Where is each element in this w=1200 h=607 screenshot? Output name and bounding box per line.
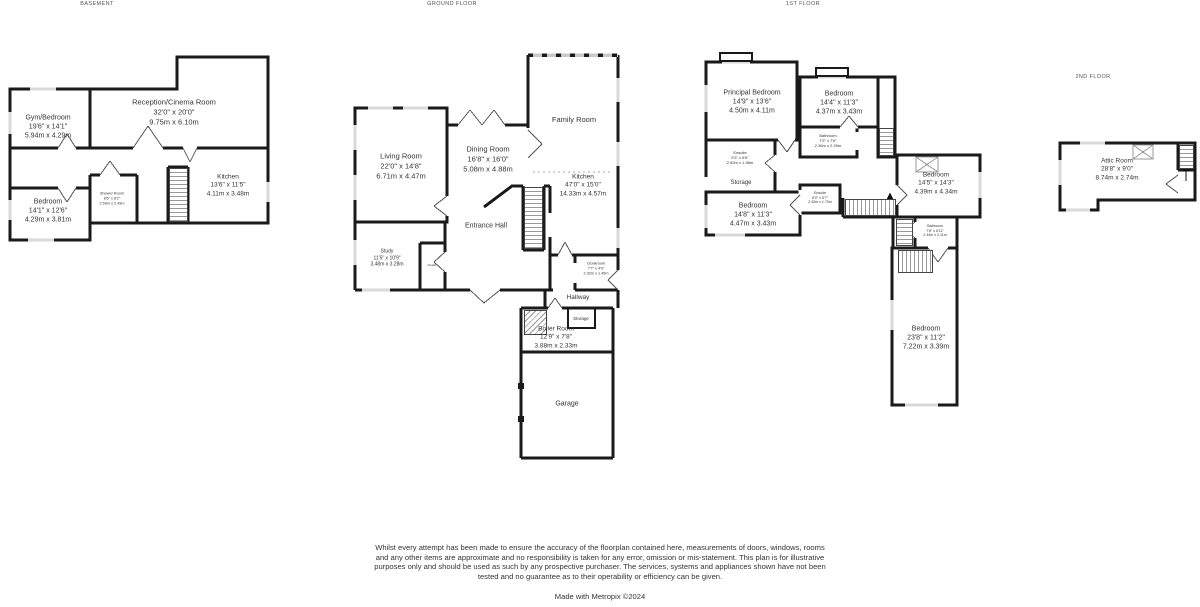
room-label-principal-bedroom: Principal Bedroom 14'9" x 13'6" 4.50m x … <box>723 88 780 115</box>
room-label-ensuite-2: Ensuite 8'0" x 5'7" 2.43m x 1.70m <box>808 191 832 205</box>
room-label-attic-room: Attic Room 28'8" x 9'0" 8.74m x 2.74m <box>1096 157 1139 182</box>
room-label-entrance-hall: Entrance Hall <box>465 221 507 230</box>
room-size-imperial: 28'8" x 9'0" <box>1096 166 1139 174</box>
room-size-metric: 4.11m x 3.48m <box>207 190 250 198</box>
room-name: Kitchen <box>560 173 607 181</box>
room-name: Bedroom <box>816 89 862 98</box>
room-size-metric: 4.39m x 4.34m <box>915 188 958 196</box>
room-name: Dining Room <box>463 144 513 154</box>
room-name: Bedroom <box>25 197 71 206</box>
room-name: Cloaks <box>427 264 436 268</box>
floorplan-canvas: BASEMENT GROUND FLOOR 1ST FLOOR 2ND FLOO… <box>0 0 1200 607</box>
room-label-reception-cinema: Reception/Cinema Room 32'0" x 20'0" 9.75… <box>132 97 216 126</box>
room-label-study: Study 11'5" x 10'9" 3.48m x 3.28m <box>370 248 403 268</box>
room-name: Reception/Cinema Room <box>132 97 216 107</box>
room-size-imperial: 14'4" x 11'3" <box>816 98 862 107</box>
room-name: Principal Bedroom <box>723 88 780 97</box>
room-name: Hallway <box>567 294 590 302</box>
room-size-imperial: 19'6" x 14'1" <box>25 122 71 131</box>
room-label-cloakroom: Cloakroom 7'7" x 4'9" 2.32m x 1.45m <box>583 262 608 277</box>
room-name: Garage <box>555 399 578 408</box>
room-size-metric: 5.08m x 4.88m <box>463 164 513 174</box>
floorplan-walls <box>0 0 1200 607</box>
room-name: Bedroom <box>903 324 949 333</box>
room-label-cloaks: Cloaks <box>427 264 436 268</box>
room-size-metric: 2.36m x 2.29m <box>815 144 841 149</box>
room-label-ground-kitchen: Kitchen 47'0" x 15'0" 14.33m x 4.57m <box>560 173 607 198</box>
room-name: Attic Room <box>1096 157 1139 165</box>
room-label-boiler-room: Boiler Room 12'9" x 7'8" 3.88m x 2.33m <box>535 325 578 350</box>
room-size-imperial: 14'1" x 12'6" <box>25 206 71 215</box>
floor-title-basement: BASEMENT <box>80 1 113 7</box>
room-name: Gym/Bedroom <box>25 113 71 122</box>
room-size-imperial: 22'0" x 14'8" <box>376 161 426 171</box>
room-label-bathroom-1: Bathroom 7'9" x 7'6" 2.36m x 2.29m <box>815 133 841 149</box>
room-label-ground-storage: Storage <box>573 316 589 322</box>
room-label-first-storage: Storage <box>730 180 751 188</box>
room-name: Living Room <box>376 151 426 161</box>
room-size-imperial: 32'0" x 20'0" <box>132 107 216 117</box>
room-label-shower-room: Shower Room 8'6" x 8'2" 2.59m x 2.49m <box>99 192 124 207</box>
floor-title-ground: GROUND FLOOR <box>427 1 477 7</box>
room-size-metric: 8.74m x 2.74m <box>1096 174 1139 182</box>
room-name: Storage <box>730 180 751 188</box>
second-stairs <box>1179 145 1194 169</box>
room-name: Bedroom <box>915 171 958 179</box>
first-roof-window <box>916 157 938 172</box>
first-winder-stairs-upper <box>896 219 913 246</box>
room-label-family-room: Family Room <box>552 115 596 125</box>
first-main-stairs <box>845 199 896 216</box>
room-label-hallway: Hallway <box>567 294 590 302</box>
room-label-bedroom-2: Bedroom 14'4" x 11'3" 4.37m x 3.43m <box>816 89 862 116</box>
room-label-ensuite-1: Ensuite 9'3" x 6'6" 2.82m x 1.98m <box>727 150 753 166</box>
room-size-metric: 5.94m x 4.29m <box>25 132 71 141</box>
room-size-imperial: 13'6" x 11'5" <box>207 182 250 190</box>
room-size-metric: 6.71m x 4.47m <box>376 171 426 181</box>
room-name: Kitchen <box>207 173 250 181</box>
room-name: Storage <box>573 316 589 322</box>
room-name: Entrance Hall <box>465 221 507 230</box>
room-size-metric: 2.32m x 1.45m <box>583 271 608 276</box>
first-window-boxes <box>720 53 848 76</box>
room-size-metric: 7.22m x 3.39m <box>903 343 949 352</box>
room-label-living-room: Living Room 22'0" x 14'8" 6.71m x 4.47m <box>376 151 426 180</box>
room-size-metric: 2.34m x 2.11m <box>923 233 947 238</box>
room-name: Bedroom <box>730 201 776 210</box>
first-winder-stairs-lower <box>898 250 933 273</box>
room-size-metric: 3.48m x 3.28m <box>370 261 403 268</box>
room-label-bedroom-3: Bedroom 14'8" x 11'3" 4.47m x 3.43m <box>730 201 776 228</box>
room-name: Boiler Room <box>535 325 578 333</box>
second-door-marks <box>1166 175 1178 193</box>
credit-text: Made with Metropix ©2024 <box>555 592 645 601</box>
room-size-metric: 2.82m x 1.98m <box>727 161 753 166</box>
room-size-metric: 4.47m x 3.43m <box>730 220 776 229</box>
room-label-bedroom-5: Bedroom 23'8" x 11'2" 7.22m x 3.39m <box>903 324 949 351</box>
floor-title-first: 1ST FLOOR <box>786 1 820 7</box>
room-label-gym-bedroom: Gym/Bedroom 19'6" x 14'1" 5.94m x 4.29m <box>25 113 71 140</box>
disclaimer-text: Whilst every attempt has been made to en… <box>369 543 831 582</box>
room-size-metric: 3.88m x 2.33m <box>535 342 578 350</box>
room-size-metric: 4.37m x 3.43m <box>816 108 862 117</box>
basement-stairs <box>169 168 188 222</box>
room-size-metric: 14.33m x 4.57m <box>560 190 607 198</box>
room-size-metric: 4.50m x 4.11m <box>723 107 780 116</box>
room-label-bedroom-4: Bedroom 14'5" x 14'3" 4.39m x 4.34m <box>915 171 958 196</box>
floor-title-second: 2ND FLOOR <box>1075 74 1110 80</box>
room-size-imperial: 14'5" x 14'3" <box>915 180 958 188</box>
room-size-imperial: 16'8" x 16'0" <box>463 154 513 164</box>
room-label-bathroom-2: Bathroom 7'8" x 6'11" 2.34m x 2.11m <box>923 224 947 238</box>
room-size-imperial: 23'8" x 11'2" <box>903 333 949 342</box>
room-size-imperial: 14'8" x 11'3" <box>730 210 776 219</box>
room-label-dining-room: Dining Room 16'8" x 16'0" 5.08m x 4.88m <box>463 144 513 173</box>
first-stairwell <box>879 128 894 156</box>
room-size-imperial: 47'0" x 15'0" <box>560 182 607 190</box>
room-size-imperial: 14'9" x 13'6" <box>723 97 780 106</box>
room-size-metric: 9.75m x 6.10m <box>132 117 216 127</box>
room-label-garage: Garage <box>555 399 578 408</box>
ground-main-stairs <box>524 187 543 249</box>
room-size-metric: 4.29m x 3.81m <box>25 216 71 225</box>
room-label-basement-kitchen: Kitchen 13'6" x 11'5" 4.11m x 3.48m <box>207 173 250 198</box>
room-size-metric: 2.43m x 1.70m <box>808 200 832 205</box>
stair-direction-arrows <box>170 165 1189 264</box>
room-size-imperial: 12'9" x 7'8" <box>535 334 578 342</box>
room-size-metric: 2.59m x 2.49m <box>99 201 124 206</box>
room-name: Family Room <box>552 115 596 125</box>
room-label-basement-bedroom: Bedroom 14'1" x 12'6" 4.29m x 3.81m <box>25 197 71 224</box>
